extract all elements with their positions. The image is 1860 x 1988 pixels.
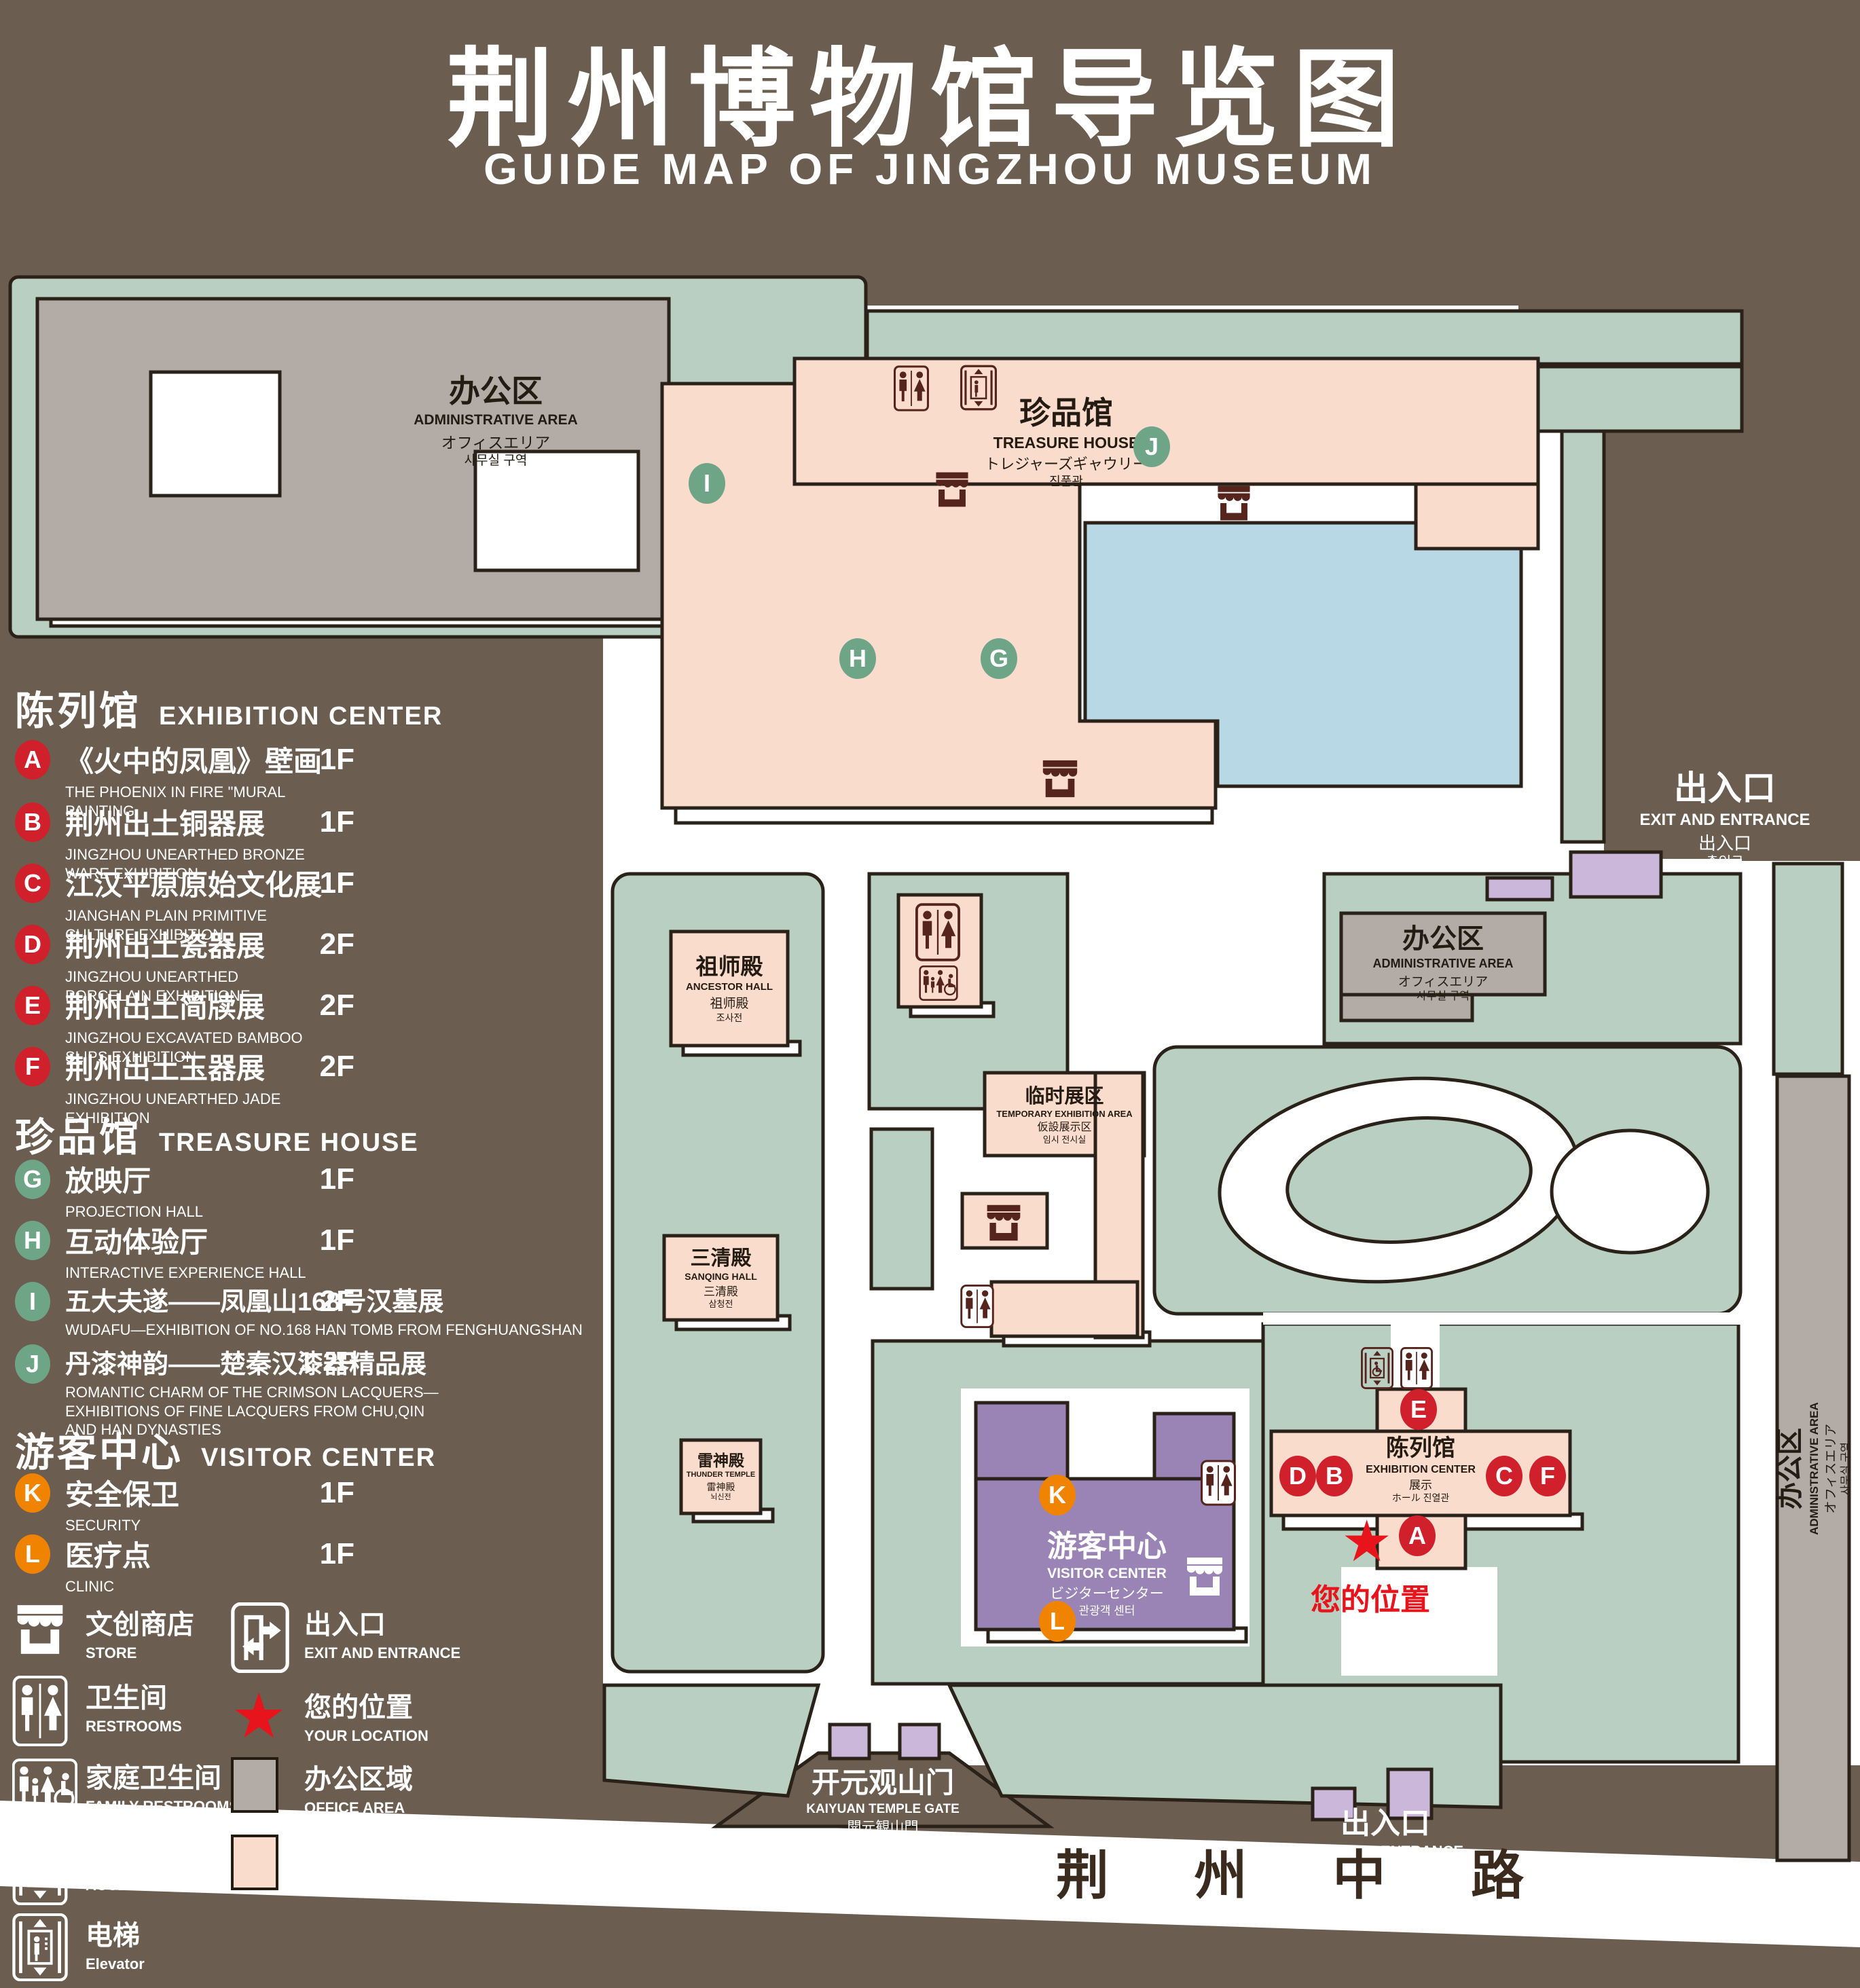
marker-c: C <box>1486 1456 1522 1496</box>
marker-f: F <box>1529 1456 1566 1496</box>
guide-map-page: 荆州博物馆导览图 GUIDE MAP OF JINGZHOU MUSEUM 陈列… <box>0 0 1860 1988</box>
floor-g: 1F <box>320 1162 354 1196</box>
badge-k: K <box>15 1473 50 1513</box>
floor-l: 1F <box>320 1537 354 1571</box>
badge-j: J <box>15 1344 50 1384</box>
badge-g: G <box>15 1160 50 1199</box>
marker-j: J <box>1133 426 1170 467</box>
marker-a: A <box>1399 1515 1436 1556</box>
legend-symbol-exit: 出入口EXIT AND ENTRANCE <box>231 1602 460 1662</box>
treasure-house-step <box>1416 484 1538 549</box>
badge-a: A <box>15 740 50 779</box>
floor-b: 1F <box>320 805 354 839</box>
treasure-wing-shadow <box>676 808 1212 823</box>
badge-c: C <box>15 864 50 903</box>
legend-symbol-elevator: 电梯Elevator <box>12 1913 145 1973</box>
your-location-label: 您的位置 <box>1311 1575 1430 1619</box>
legend-symbol-family-restrooms: 家庭卫生间FAMILY RESTROOMS <box>12 1756 239 1816</box>
display-area-swatch <box>231 1835 278 1890</box>
your-location-star-icon: ★ <box>1341 1513 1392 1570</box>
legend-symbol-location: ★ 您的位置YOUR LOCATION <box>231 1685 428 1745</box>
temp-store-icon <box>983 1203 1024 1246</box>
legend-symbol-office-area: 办公区域OFFICE AREA <box>231 1757 413 1817</box>
th-restrooms-icon <box>894 365 929 415</box>
right-admin-purple <box>1487 878 1552 900</box>
legend-section-exhibition: 陈列馆EXHIBITION CENTER <box>15 679 443 736</box>
floor-j: 1-2F <box>299 1347 354 1378</box>
label-sanqing-hall: 三清殿 SANQING HALL 三清殿 삼청전 <box>664 1236 778 1320</box>
badge-h: H <box>15 1221 50 1260</box>
floor-f: 2F <box>320 1050 354 1084</box>
badge-l: L <box>15 1534 50 1574</box>
floor-c: 1F <box>320 866 354 900</box>
central-restrooms-icon <box>915 903 960 965</box>
label-visitor-center: 游客中心 VISITOR CENTER ビジターセンター 관광객 센터 <box>1005 1528 1209 1618</box>
marker-e: E <box>1400 1389 1437 1430</box>
floor-k: 1F <box>320 1476 354 1510</box>
floor-d: 2F <box>320 927 354 961</box>
badge-d: D <box>15 925 50 964</box>
legend-item-h: H 互动体验厅INTERACTIVE EXPERIENCE HALL 1F <box>15 1219 354 1283</box>
lawn-treasure-top-strip <box>867 311 1742 364</box>
label-nw-admin: 办公区 ADMINISTRATIVE AREA オフィスエリア 사무실 구역 <box>367 372 625 468</box>
page-subtitle: GUIDE MAP OF JINGZHOU MUSEUM <box>0 144 1860 194</box>
th-store-icon-3 <box>1039 757 1081 804</box>
badge-i: I <box>15 1282 50 1321</box>
location-star-icon: ★ <box>231 1685 287 1748</box>
vc-store-icon <box>1183 1556 1226 1600</box>
temp-exhibition-bottom <box>991 1282 1137 1336</box>
temp-restrooms-icon <box>960 1285 994 1331</box>
legend-item-l: L 医疗点CLINIC 1F <box>15 1533 354 1596</box>
visitor-center-left <box>976 1403 1068 1483</box>
ex-accessible-elevator-icon <box>1361 1347 1393 1393</box>
legend-symbol-store: 文创商店STORE <box>12 1602 194 1662</box>
legend-symbol-restrooms: 卫生间RESTROOMS <box>12 1676 182 1735</box>
garden-path-blob <box>1552 1130 1708 1253</box>
label-office-strip: 办公区 ADMINISTRATIVE AREA オフィスエリア 사무실 구역 <box>1777 1076 1849 1860</box>
lawn-e-strip <box>1774 864 1842 1074</box>
nw-admin-courtyard-2 <box>475 452 638 570</box>
nw-admin-courtyard-1 <box>151 372 280 496</box>
lawn-temp-left-strip <box>871 1129 932 1289</box>
legend-item-g: G 放映厅PROJECTION HALL 1F <box>15 1158 354 1221</box>
marker-k: K <box>1039 1475 1076 1515</box>
floor-h: 1F <box>320 1223 354 1257</box>
accessible-elevator-icon <box>12 1835 68 1909</box>
legend-item-k: K 安全保卫SECURITY 1F <box>15 1472 354 1535</box>
marker-l: L <box>1039 1601 1076 1642</box>
elevator-icon <box>12 1913 68 1985</box>
badge-b: B <box>15 803 50 842</box>
ex-restrooms-icon <box>1399 1347 1434 1393</box>
family-restrooms-icon <box>12 1756 77 1824</box>
legend-section-treasure: 珍品馆TREASURE HOUSE <box>15 1105 419 1162</box>
floor-i: 2F <box>320 1285 354 1319</box>
marker-i: I <box>689 463 725 504</box>
store-icon <box>12 1602 68 1660</box>
label-temp-exhibition: 临时展区 TEMPORARY EXHIBITION AREA 仮設展示区 임시 … <box>985 1074 1144 1156</box>
th-store-icon-2 <box>1214 482 1254 528</box>
badge-e: E <box>15 986 50 1025</box>
badge-f: F <box>15 1047 50 1086</box>
marker-d: D <box>1279 1456 1316 1496</box>
central-family-restrooms-icon <box>918 965 959 1004</box>
marker-g: G <box>981 638 1017 679</box>
lawn-ne-strip <box>1562 431 1604 842</box>
marker-h: H <box>839 638 876 679</box>
floor-e: 2F <box>320 989 354 1023</box>
label-kaiyuan-gate: 开元观山门 KAIYUAN TEMPLE GATE 開元観山門 산문을 열다 <box>781 1765 985 1852</box>
gate-pillar-left <box>830 1725 869 1759</box>
vc-restrooms-icon <box>1201 1460 1236 1509</box>
legend-section-visitor: 游客中心VISITOR CENTER <box>15 1420 436 1477</box>
gate-pillar-right <box>900 1725 939 1759</box>
lawn-ne-block <box>1522 367 1742 431</box>
th-elevator-icon <box>960 364 997 415</box>
label-exhibition-center: 陈列馆 EXHIBITION CENTER 展示 ホール 진열관 <box>1346 1434 1495 1504</box>
label-right-admin: 办公区 ADMINISTRATIVE AREA オフィスエリア 사무실 구역 <box>1348 922 1538 1004</box>
office-area-swatch <box>231 1757 278 1813</box>
legend-symbol-display-area: 展示区域DISPLAY AREA <box>231 1835 414 1894</box>
road-name: 荆 州 中 路 <box>1056 1833 1559 1909</box>
label-ancestor-hall: 祖师殿 ANCESTOR HALL 祖师殿 조사전 <box>671 932 788 1046</box>
th-store-icon-1 <box>932 468 972 514</box>
label-ne-exit: 出入口 EXIT AND ENTRANCE 出入口 출입구 <box>1603 767 1847 871</box>
path-garden-gap <box>1263 1312 1742 1325</box>
marker-b: B <box>1316 1456 1353 1496</box>
floor-a: 1F <box>320 743 354 777</box>
legend-symbol-accessible-elevator: 无障碍电梯ACCESSIBLE ELEVATOR <box>12 1835 265 1894</box>
restrooms-icon <box>12 1676 68 1750</box>
legend-item-i: I 五大夫遂——凤凰山168号汉墓展WUDAFU—EXHIBITION OF N… <box>15 1281 354 1340</box>
label-thunder-temple: 雷神殿 THUNDER TEMPLE 雷神殿 뇌신전 <box>681 1440 761 1513</box>
exit-icon <box>231 1602 289 1676</box>
ne-exit-door-icon <box>1434 800 1480 866</box>
